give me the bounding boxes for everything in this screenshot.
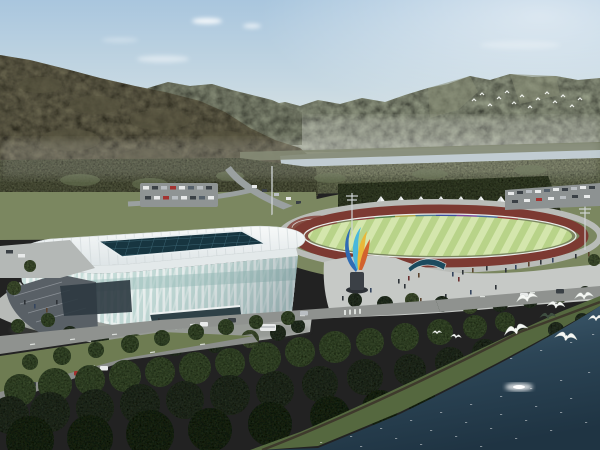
sun-glint-core	[513, 385, 525, 389]
rendering-image	[0, 0, 600, 450]
entrance-glass	[60, 280, 132, 316]
